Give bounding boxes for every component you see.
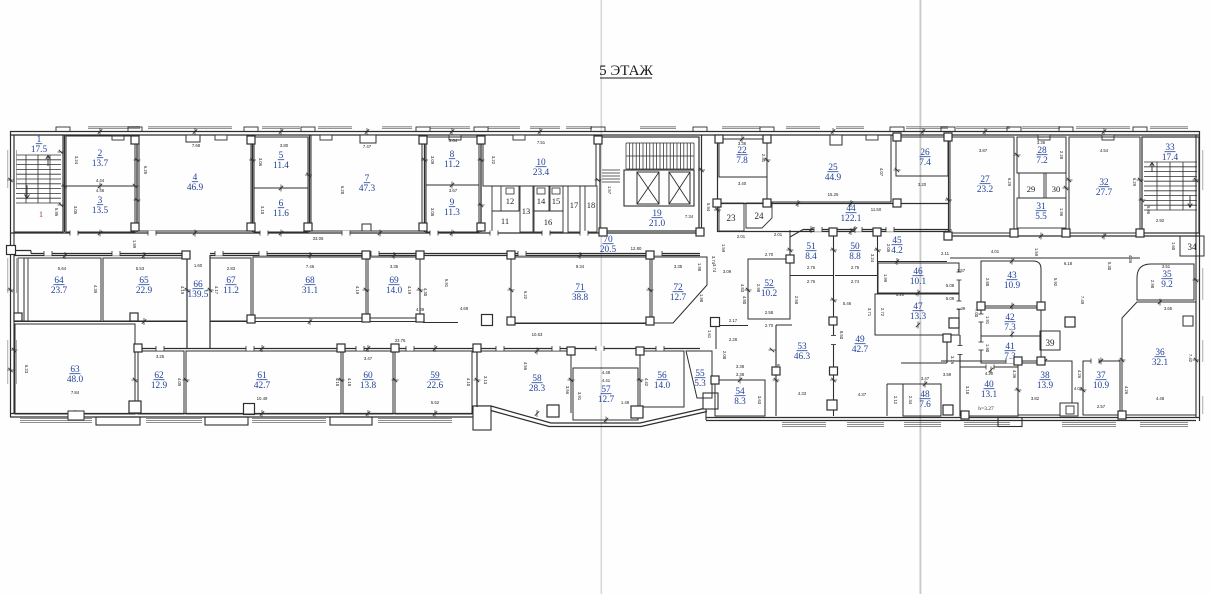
- svg-text:6.23: 6.23: [24, 365, 29, 374]
- svg-text:39: 39: [1046, 338, 1056, 348]
- svg-text:11.6: 11.6: [273, 209, 289, 219]
- svg-text:139.5: 139.5: [188, 290, 209, 300]
- svg-text:7.42: 7.42: [1188, 354, 1193, 363]
- svg-text:33.76: 33.76: [395, 338, 406, 343]
- svg-text:2.98: 2.98: [756, 284, 761, 293]
- svg-text:2.11: 2.11: [941, 251, 950, 256]
- svg-text:4.83: 4.83: [740, 284, 745, 293]
- svg-text:1.61: 1.61: [707, 330, 712, 339]
- svg-text:2.01: 2.01: [774, 232, 783, 237]
- svg-text:2.76: 2.76: [807, 279, 816, 284]
- svg-text:14: 14: [537, 196, 546, 206]
- svg-text:17: 17: [570, 200, 579, 210]
- svg-text:2.76: 2.76: [807, 265, 816, 270]
- svg-text:4.56: 4.56: [523, 362, 528, 371]
- svg-text:3.08: 3.08: [430, 208, 435, 217]
- svg-text:6.29: 6.29: [1007, 178, 1012, 187]
- svg-text:3.06: 3.06: [258, 158, 263, 167]
- svg-text:5.52: 5.52: [431, 400, 440, 405]
- svg-text:3.05: 3.05: [73, 206, 78, 215]
- svg-text:7.46: 7.46: [306, 264, 315, 269]
- svg-text:7.84: 7.84: [71, 390, 80, 395]
- svg-text:7.49: 7.49: [1080, 296, 1085, 305]
- svg-text:3.47: 3.47: [364, 356, 373, 361]
- svg-text:30: 30: [1052, 184, 1061, 194]
- svg-text:13: 13: [522, 206, 531, 216]
- svg-text:5.46: 5.46: [843, 301, 852, 306]
- svg-text:3.38: 3.38: [736, 372, 745, 377]
- svg-text:4.18: 4.18: [335, 378, 340, 387]
- svg-text:5.95: 5.95: [54, 208, 59, 217]
- svg-text:4.36: 4.36: [1012, 370, 1017, 379]
- svg-text:2.05: 2.05: [886, 244, 891, 253]
- svg-text:1.98: 1.98: [699, 294, 704, 303]
- svg-text:23.4: 23.4: [533, 168, 550, 178]
- svg-text:3.09: 3.09: [723, 269, 732, 274]
- svg-text:13.7: 13.7: [92, 159, 109, 169]
- svg-text:3.10: 3.10: [260, 206, 265, 215]
- svg-text:3.25: 3.25: [156, 354, 165, 359]
- svg-text:3.59: 3.59: [943, 372, 952, 377]
- svg-text:34: 34: [1188, 242, 1198, 252]
- svg-text:4.44: 4.44: [96, 178, 105, 183]
- svg-text:4.01: 4.01: [991, 249, 1000, 254]
- svg-text:4.80: 4.80: [742, 296, 747, 305]
- svg-text:8.8: 8.8: [849, 252, 861, 262]
- svg-text:10.9: 10.9: [1004, 281, 1021, 291]
- svg-text:3.13: 3.13: [483, 376, 488, 385]
- svg-text:3.56: 3.56: [565, 386, 570, 395]
- svg-text:1.96: 1.96: [1059, 208, 1064, 217]
- svg-text:3.22: 3.22: [491, 156, 496, 165]
- svg-text:7.6: 7.6: [919, 400, 931, 410]
- svg-text:7.2: 7.2: [1036, 156, 1048, 166]
- svg-text:122.1: 122.1: [841, 214, 862, 224]
- svg-text:1: 1: [39, 210, 43, 219]
- svg-text:8.4: 8.4: [805, 252, 817, 262]
- svg-text:13.5: 13.5: [92, 206, 109, 216]
- svg-text:2.57: 2.57: [1097, 404, 1106, 409]
- svg-text:4.09: 4.09: [416, 307, 425, 312]
- svg-text:5.91: 5.91: [444, 279, 449, 288]
- svg-text:12.7: 12.7: [670, 293, 687, 303]
- svg-text:12.80: 12.80: [631, 246, 642, 251]
- svg-text:7.3: 7.3: [1004, 323, 1016, 333]
- svg-text:14.0: 14.0: [386, 286, 403, 296]
- svg-text:4.36: 4.36: [1128, 255, 1133, 264]
- svg-text:3.24: 3.24: [74, 156, 79, 165]
- svg-text:5.30: 5.30: [1107, 262, 1112, 271]
- svg-text:46.3: 46.3: [794, 352, 811, 362]
- svg-text:9.34: 9.34: [576, 264, 585, 269]
- svg-text:4.09: 4.09: [177, 378, 182, 387]
- svg-text:24: 24: [755, 211, 765, 221]
- svg-text:44.9: 44.9: [825, 173, 842, 183]
- svg-text:13.3: 13.3: [910, 312, 927, 322]
- svg-text:4.37: 4.37: [858, 392, 867, 397]
- svg-text:11.2: 11.2: [223, 286, 239, 296]
- svg-text:1.60: 1.60: [1171, 242, 1176, 251]
- svg-text:5.20: 5.20: [896, 292, 905, 297]
- svg-text:5.53: 5.53: [136, 266, 145, 271]
- svg-text:1.49: 1.49: [621, 400, 630, 405]
- svg-text:9.2: 9.2: [1161, 280, 1173, 290]
- svg-text:5.09: 5.09: [946, 296, 955, 301]
- svg-text:2.74: 2.74: [851, 279, 860, 284]
- svg-text:16: 16: [544, 217, 553, 227]
- svg-text:20.5: 20.5: [600, 245, 617, 255]
- svg-text:2.70: 2.70: [765, 323, 774, 328]
- svg-text:31.1: 31.1: [302, 286, 319, 296]
- svg-text:3.67: 3.67: [449, 188, 458, 193]
- svg-text:4.54: 4.54: [1100, 148, 1109, 153]
- svg-text:3.35: 3.35: [390, 264, 399, 269]
- svg-text:22.6: 22.6: [427, 381, 444, 391]
- svg-text:23.7: 23.7: [51, 286, 68, 296]
- svg-text:1.90: 1.90: [985, 344, 990, 353]
- svg-text:17.5: 17.5: [31, 145, 48, 155]
- svg-text:42.7: 42.7: [852, 345, 869, 355]
- svg-text:5 ЭТАЖ: 5 ЭТАЖ: [599, 63, 653, 79]
- svg-text:3.87: 3.87: [979, 148, 988, 153]
- svg-text:3.36: 3.36: [1037, 140, 1046, 145]
- svg-text:1.89: 1.89: [132, 240, 137, 249]
- svg-text:4.2: 4.2: [891, 246, 903, 256]
- svg-text:7.4: 7.4: [919, 158, 931, 168]
- svg-text:10.1: 10.1: [910, 277, 927, 287]
- svg-text:4.33: 4.33: [798, 391, 807, 396]
- svg-text:11.4: 11.4: [273, 161, 289, 171]
- svg-text:1.98: 1.98: [697, 263, 702, 272]
- svg-text:11.3: 11.3: [444, 208, 460, 218]
- svg-text:11.50: 11.50: [871, 207, 882, 212]
- svg-text:2.98: 2.98: [1150, 280, 1155, 289]
- svg-text:4.42: 4.42: [644, 378, 649, 387]
- svg-text:5.08: 5.08: [946, 283, 955, 288]
- svg-text:3.40: 3.40: [738, 181, 747, 186]
- svg-text:1.91: 1.91: [985, 316, 990, 325]
- svg-text:6.28: 6.28: [340, 186, 345, 195]
- svg-text:6.25: 6.25: [143, 166, 148, 175]
- svg-text:5.96: 5.96: [1146, 206, 1151, 215]
- svg-text:15.25: 15.25: [828, 192, 839, 197]
- svg-text:2.34: 2.34: [908, 396, 913, 405]
- svg-text:3.38: 3.38: [736, 364, 745, 369]
- svg-text:47.3: 47.3: [359, 184, 376, 194]
- svg-text:23.2: 23.2: [977, 185, 994, 195]
- svg-text:2.83: 2.83: [227, 266, 236, 271]
- svg-text:4.19: 4.19: [407, 286, 412, 295]
- svg-text:7.34: 7.34: [685, 214, 694, 219]
- svg-text:3.63: 3.63: [757, 396, 762, 405]
- svg-text:2.70: 2.70: [765, 252, 774, 257]
- svg-text:3.64: 3.64: [449, 138, 458, 143]
- svg-text:2.58: 2.58: [765, 310, 774, 315]
- svg-text:6.29: 6.29: [1132, 178, 1137, 187]
- svg-text:11.2: 11.2: [444, 160, 460, 170]
- svg-text:42.7: 42.7: [254, 381, 271, 391]
- svg-text:1.59: 1.59: [721, 244, 726, 253]
- svg-text:3.09: 3.09: [430, 156, 435, 165]
- svg-text:32.1: 32.1: [1152, 358, 1169, 368]
- svg-text:12.9: 12.9: [151, 381, 168, 391]
- svg-text:3.80: 3.80: [280, 143, 289, 148]
- svg-text:3.18: 3.18: [965, 386, 970, 395]
- svg-text:4.17: 4.17: [214, 286, 219, 295]
- svg-text:7.8: 7.8: [736, 156, 748, 166]
- svg-text:10.49: 10.49: [257, 396, 268, 401]
- svg-text:38.8: 38.8: [572, 293, 589, 303]
- svg-text:5.94: 5.94: [706, 203, 711, 212]
- svg-text:18: 18: [587, 200, 596, 210]
- svg-text:21.0: 21.0: [649, 219, 666, 229]
- svg-text:22.9: 22.9: [136, 286, 153, 296]
- svg-text:3.82: 3.82: [1031, 396, 1040, 401]
- svg-text:5.3: 5.3: [694, 379, 706, 389]
- svg-text:5.5: 5.5: [1035, 212, 1047, 222]
- svg-text:28.3: 28.3: [529, 384, 546, 394]
- svg-text:4.26: 4.26: [1077, 370, 1082, 379]
- svg-text:17.4: 17.4: [1162, 153, 1179, 163]
- svg-text:2.88: 2.88: [985, 278, 990, 287]
- svg-text:10.9: 10.9: [1093, 381, 1110, 391]
- svg-text:13.1: 13.1: [981, 390, 998, 400]
- svg-text:14.0: 14.0: [654, 381, 671, 391]
- svg-text:4.30: 4.30: [423, 288, 428, 297]
- svg-text:2.58: 2.58: [794, 296, 799, 305]
- svg-text:4.26: 4.26: [1124, 386, 1129, 395]
- svg-text:4.69: 4.69: [460, 306, 469, 311]
- svg-text:4.18: 4.18: [347, 378, 352, 387]
- svg-text:4.10: 4.10: [466, 378, 471, 387]
- svg-text:10.2: 10.2: [761, 289, 778, 299]
- svg-text:3.35: 3.35: [674, 264, 683, 269]
- svg-text:8.3: 8.3: [734, 397, 746, 407]
- svg-text:2.01: 2.01: [737, 234, 746, 239]
- svg-text:33.05: 33.05: [313, 236, 324, 241]
- svg-text:48.0: 48.0: [67, 375, 84, 385]
- svg-text:10.63: 10.63: [532, 332, 543, 337]
- svg-text:29: 29: [1027, 184, 1036, 194]
- svg-text:8.50: 8.50: [839, 331, 844, 340]
- svg-text:5.92: 5.92: [1053, 278, 1058, 287]
- svg-text:3.74: 3.74: [712, 264, 717, 273]
- svg-text:11: 11: [501, 216, 509, 226]
- svg-text:3.65: 3.65: [1164, 306, 1173, 311]
- svg-text:5.64: 5.64: [58, 266, 67, 271]
- svg-text:2.17: 2.17: [729, 318, 738, 323]
- svg-text:2.75: 2.75: [851, 265, 860, 270]
- svg-text:2.28: 2.28: [729, 337, 738, 342]
- svg-text:1.60: 1.60: [194, 263, 203, 268]
- svg-text:2.72: 2.72: [880, 308, 885, 317]
- svg-text:2.12: 2.12: [893, 396, 898, 405]
- svg-text:h=3.27: h=3.27: [978, 406, 994, 412]
- svg-text:27.7: 27.7: [1096, 188, 1113, 198]
- svg-text:3.16: 3.16: [950, 356, 955, 365]
- svg-text:2.28: 2.28: [1059, 151, 1064, 160]
- svg-text:7.68: 7.68: [192, 143, 201, 148]
- svg-text:13.9: 13.9: [1037, 381, 1054, 391]
- svg-text:7.51: 7.51: [537, 140, 546, 145]
- svg-text:13.8: 13.8: [360, 381, 377, 391]
- svg-text:15: 15: [552, 196, 561, 206]
- svg-text:2.92: 2.92: [1156, 218, 1165, 223]
- svg-text:7.47: 7.47: [363, 144, 372, 149]
- svg-text:3.51: 3.51: [1162, 264, 1171, 269]
- svg-text:4.19: 4.19: [355, 286, 360, 295]
- svg-text:12.7: 12.7: [598, 395, 615, 405]
- svg-text:3.71: 3.71: [867, 308, 872, 317]
- svg-text:6.18: 6.18: [1064, 261, 1073, 266]
- svg-text:3.91: 3.91: [577, 392, 582, 401]
- svg-text:4.07: 4.07: [879, 168, 884, 177]
- svg-text:3.47: 3.47: [921, 376, 930, 381]
- svg-text:1.59: 1.59: [1034, 248, 1039, 257]
- svg-text:1.57: 1.57: [607, 186, 612, 195]
- svg-text:46.9: 46.9: [187, 183, 204, 193]
- svg-text:3.20: 3.20: [918, 182, 927, 187]
- svg-text:1.99: 1.99: [883, 274, 888, 283]
- svg-text:4.48: 4.48: [1156, 396, 1165, 401]
- svg-text:2.08: 2.08: [722, 351, 727, 360]
- svg-text:4.39: 4.39: [93, 285, 98, 294]
- svg-text:4.48: 4.48: [602, 370, 611, 375]
- svg-text:3.24: 3.24: [870, 254, 875, 263]
- svg-text:12: 12: [506, 196, 515, 206]
- svg-text:6.22: 6.22: [523, 291, 528, 300]
- svg-text:4.41: 4.41: [602, 378, 611, 383]
- svg-text:23: 23: [727, 213, 737, 223]
